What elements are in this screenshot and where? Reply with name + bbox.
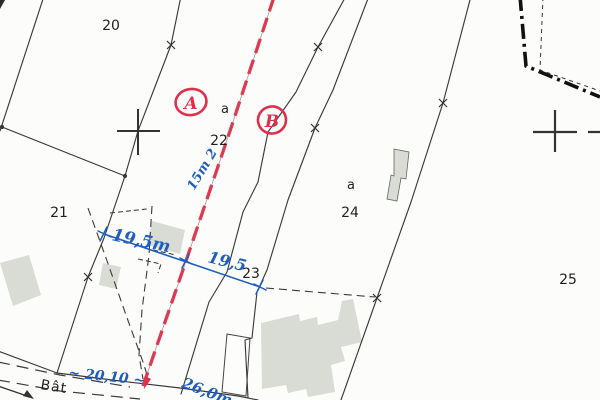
- marker-a-letter: A: [182, 94, 197, 114]
- parcel-label-22: 22: [210, 133, 228, 149]
- sub-parcel-label-a-24: a: [347, 178, 355, 193]
- parcel-label-25: 25: [559, 272, 577, 288]
- parcel-label-21: 21: [50, 205, 68, 221]
- marker-b-letter: B: [264, 112, 279, 132]
- cadastral-map-scan: A B 19,5m 19,5 15m 2 ~ 20,10 ~ 26,0m 20 …: [0, 0, 600, 400]
- parcel-label-23: 23: [242, 266, 260, 282]
- boundary-point-dot: [0, 125, 4, 129]
- sub-parcel-label-a-22: a: [221, 102, 229, 117]
- parcel-label-20: 20: [102, 18, 120, 34]
- cadastral-map: A B 19,5m 19,5 15m 2 ~ 20,10 ~ 26,0m 20 …: [0, 0, 600, 400]
- parcel-label-24: 24: [341, 205, 359, 221]
